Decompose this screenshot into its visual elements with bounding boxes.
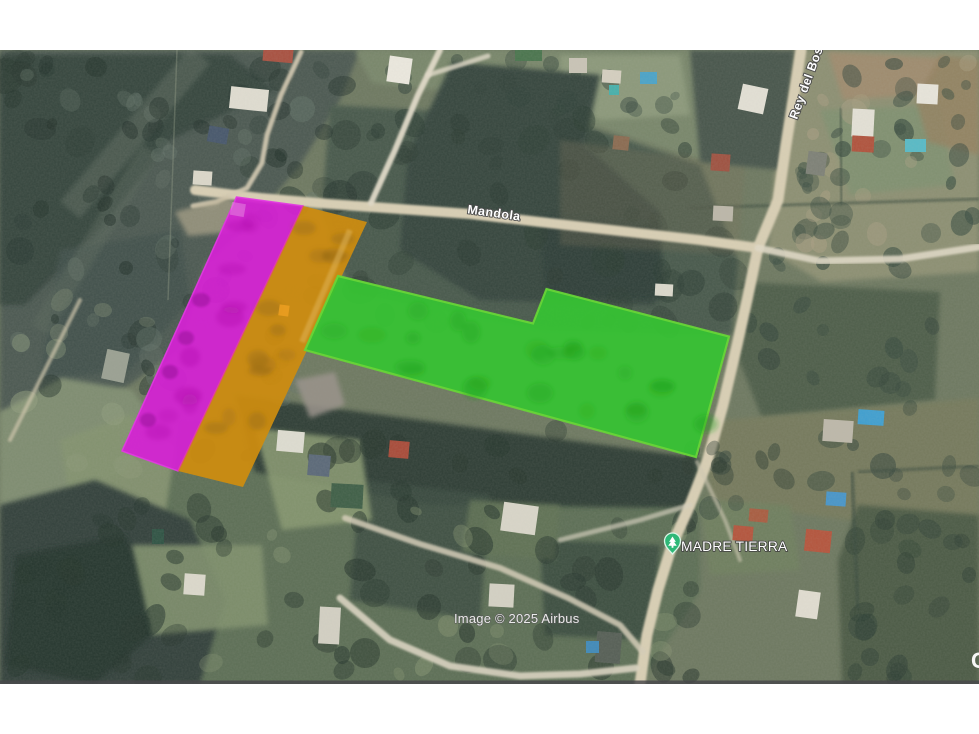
svg-text:MADRE TIERRA: MADRE TIERRA [681,539,788,554]
svg-text:C: C [971,648,979,673]
svg-text:Image © 2025 Airbus: Image © 2025 Airbus [454,611,580,626]
